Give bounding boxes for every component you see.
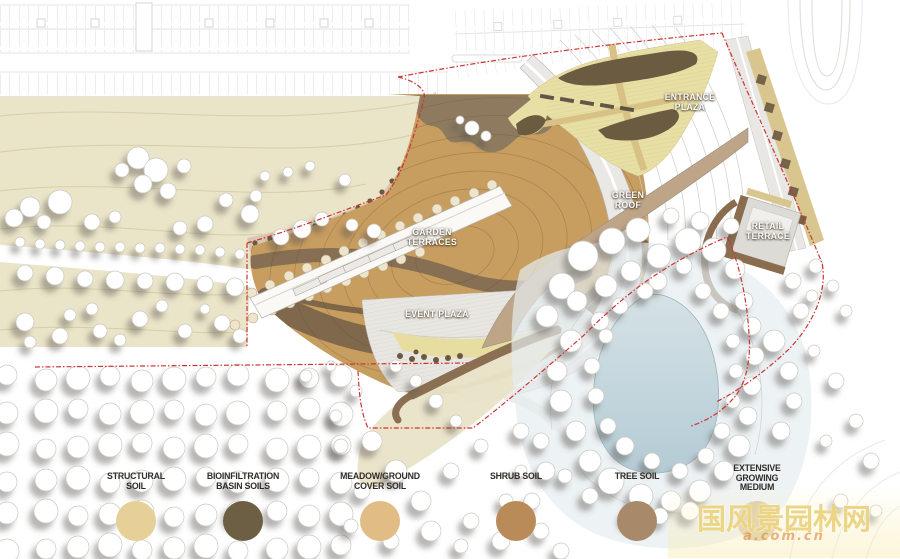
legend-swatch <box>223 501 263 541</box>
site-plan: ENTRANCEPLAZA GARDENTERRACES GREENROOF E… <box>0 0 900 559</box>
legend-swatch <box>737 501 777 541</box>
legend-item-shrub-soil: SHRUB SOIL <box>451 472 581 482</box>
legend-label: EXTENSIVEGROWINGMEDIUM <box>697 464 817 493</box>
label-garden-terraces: GARDENTERRACES <box>407 227 457 247</box>
legend-swatch <box>496 501 536 541</box>
legend-item-meadow: MEADOW/GROUNDCOVER SOIL <box>315 472 445 491</box>
orchard-grid <box>0 364 353 559</box>
legend-swatch <box>360 501 400 541</box>
label-green-roof: GREENROOF <box>612 190 644 210</box>
label-retail-terrace: RETAILTERRACE <box>746 221 790 241</box>
legend-label: BIOINFILTRATIONBASIN SOILS <box>183 472 303 491</box>
hairpin-road <box>788 0 862 104</box>
legend-swatch <box>617 501 657 541</box>
label-event-plaza: EVENT PLAZA <box>405 309 469 319</box>
legend-item-extensive-growing: EXTENSIVEGROWINGMEDIUM <box>692 464 822 493</box>
legend-item-bioinfiltration: BIOINFILTRATIONBASIN SOILS <box>178 472 308 491</box>
label-entrance-plaza: ENTRANCEPLAZA <box>665 92 716 112</box>
legend-swatch <box>116 501 156 541</box>
legend-label: MEADOW/GROUNDCOVER SOIL <box>320 472 440 491</box>
legend-label: SHRUB SOIL <box>456 472 576 482</box>
legend-label: TREE SOIL <box>577 472 697 482</box>
legend-item-tree-soil: TREE SOIL <box>572 472 702 482</box>
